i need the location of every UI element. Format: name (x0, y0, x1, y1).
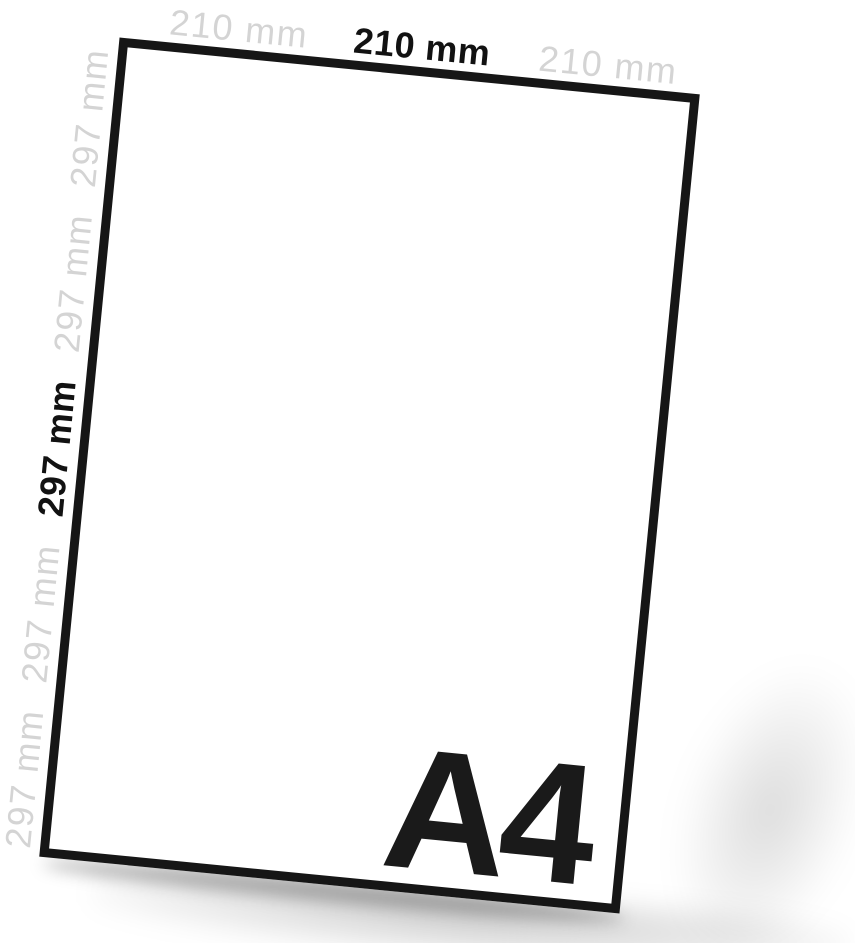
paper-sheet (39, 38, 700, 914)
a4-size-diagram: 210 mm 210 mm 210 mm 297 mm 297 mm 297 m… (0, 0, 855, 943)
wall-shadow (639, 640, 855, 943)
